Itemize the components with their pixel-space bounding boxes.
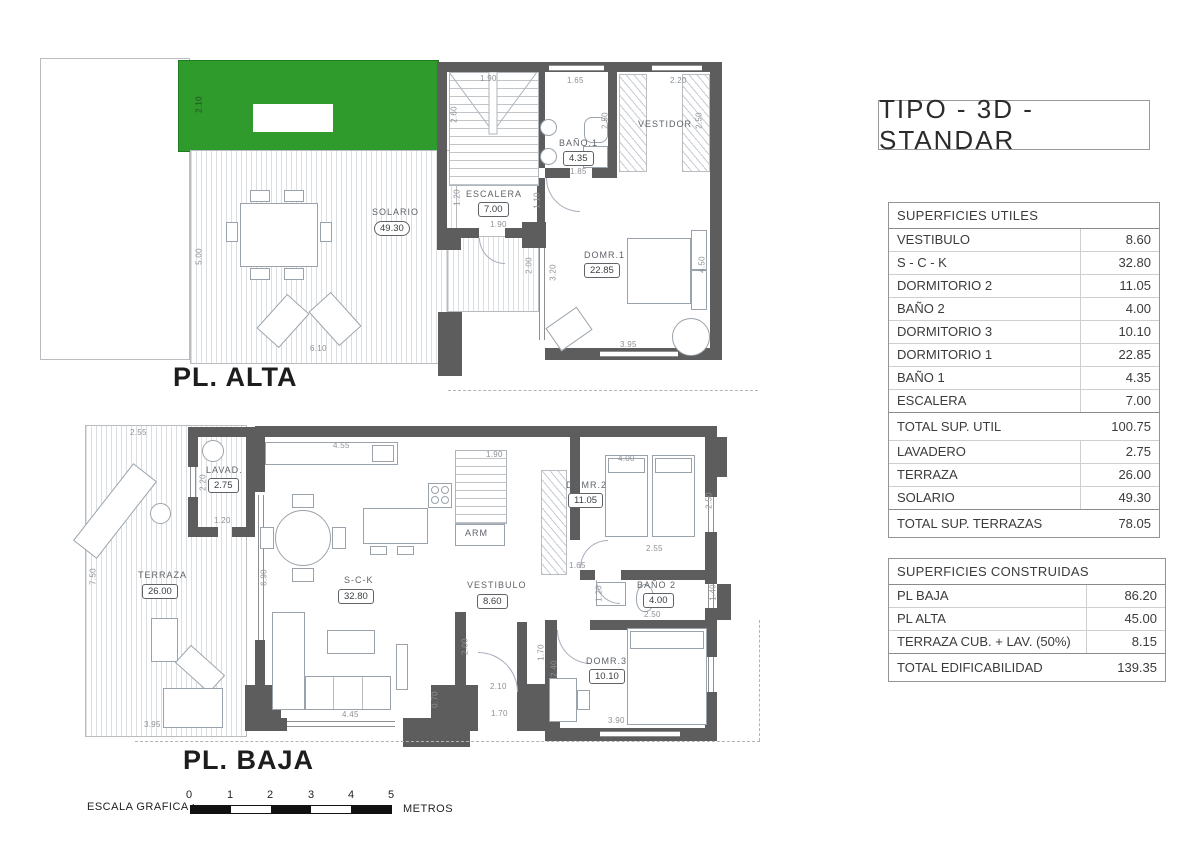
- table-row: BAÑO 24.00: [889, 297, 1159, 320]
- dim-label: 3.90: [608, 716, 625, 725]
- dim-label: 1.65: [567, 76, 584, 85]
- dim-label: 1.20: [214, 516, 231, 525]
- room-label-dorm1: DOMR.1: [584, 250, 625, 260]
- plan-baja-title: PL. BAJA: [183, 745, 314, 776]
- scale-tick: 2: [267, 789, 273, 801]
- alta-terrace-outline: [40, 58, 190, 360]
- row-label: TERRAZA CUB. + LAV. (50%): [889, 631, 1087, 653]
- area-bano1: 4.35: [563, 151, 594, 166]
- row-label: BAÑO 2: [889, 298, 1081, 320]
- wall: [255, 426, 717, 437]
- scale-tick: 0: [186, 789, 192, 801]
- dim-label: 3.95: [144, 720, 161, 729]
- row-label: VESTIBULO: [889, 229, 1081, 251]
- table-row: TOTAL SUP. UTIL100.75: [889, 412, 1159, 440]
- table-row: DORMITORIO 122.85: [889, 343, 1159, 366]
- room-label-dorm3: DOMR.3: [586, 656, 627, 666]
- row-label: BAÑO 1: [889, 367, 1081, 389]
- row-label: DORMITORIO 2: [889, 275, 1081, 297]
- dim-label: 4.50: [698, 252, 707, 278]
- row-label: S - C - K: [889, 252, 1081, 274]
- wall: [545, 168, 570, 178]
- bed-pillow: [630, 631, 704, 649]
- chair: [284, 190, 304, 202]
- table-row: BAÑO 14.35: [889, 366, 1159, 389]
- scale-tick: 3: [308, 789, 314, 801]
- scale-ruler: [190, 805, 392, 814]
- dim-label: 0.70: [431, 687, 440, 713]
- dim-label: 3.20: [549, 260, 558, 286]
- window: [708, 657, 714, 692]
- table-row: S - C - K32.80: [889, 251, 1159, 274]
- wall: [621, 570, 707, 580]
- scale-label: ESCALA GRAFICA :: [87, 801, 195, 813]
- wall: [710, 62, 722, 358]
- chair: [250, 268, 270, 280]
- wall-pillar: [717, 584, 731, 620]
- plan-alta-title: PL. ALTA: [173, 362, 297, 393]
- dim-label: 3.95: [620, 340, 637, 349]
- solario-deck: [190, 150, 457, 364]
- burner: [431, 496, 439, 504]
- dim-label: 2.00: [525, 253, 534, 279]
- dim-label: 2.40: [550, 656, 559, 682]
- wall: [580, 570, 595, 580]
- row-label: TOTAL SUP. TERRAZAS: [889, 510, 1081, 537]
- row-label: SOLARIO: [889, 487, 1081, 509]
- superficies-construidas-table: SUPERFICIES CONSTRUIDAS PL BAJA86.20PL A…: [888, 558, 1166, 682]
- room-label-escalera: ESCALERA: [466, 189, 522, 199]
- room-label-dorm2: DOMR.2: [566, 480, 607, 490]
- row-label: TOTAL EDIFICABILIDAD: [889, 654, 1087, 681]
- tv-bench: [396, 644, 408, 690]
- area-dorm3: 10.10: [589, 669, 625, 684]
- door-arc: [546, 178, 580, 212]
- sofa-chaise: [272, 612, 305, 710]
- stool: [370, 546, 387, 555]
- chair: [292, 568, 314, 582]
- row-label: PL BAJA: [889, 585, 1087, 607]
- dim-label: 2.55: [646, 544, 663, 553]
- table-row: PL BAJA86.20: [889, 585, 1165, 607]
- plant: [672, 318, 710, 356]
- coffee-table: [327, 630, 375, 654]
- burner: [441, 486, 449, 494]
- sink-basin: [540, 119, 557, 136]
- dim-label: 2.00: [461, 634, 470, 660]
- table-header: SUPERFICIES UTILES: [889, 203, 1159, 229]
- dim-label: 1.85: [570, 167, 587, 176]
- superficies-utiles-table: SUPERFICIES UTILES VESTIBULO8.60S - C - …: [888, 202, 1160, 538]
- scale-tick: 1: [227, 789, 233, 801]
- row-value: 7.00: [1081, 390, 1159, 412]
- row-value: 11.05: [1081, 275, 1159, 297]
- wall: [505, 228, 545, 238]
- row-label: LAVADERO: [889, 441, 1081, 463]
- sheet-title: TIPO - 3D -STANDAR: [879, 94, 1149, 156]
- dim-label: 1.90: [486, 450, 503, 459]
- dim-label: 1.20: [453, 185, 462, 211]
- row-value: 22.85: [1081, 344, 1159, 366]
- dim-label: 2.20: [199, 470, 208, 496]
- bed-pillow: [655, 458, 692, 473]
- table-row: PL ALTA45.00: [889, 607, 1165, 630]
- stairs-baja: [455, 450, 507, 524]
- grass-planter: [253, 104, 333, 132]
- dim-label: 7.50: [89, 564, 98, 590]
- row-value: 32.80: [1081, 252, 1159, 274]
- dim-label: 2.55: [130, 428, 147, 437]
- window: [549, 65, 604, 71]
- table-row: TERRAZA26.00: [889, 463, 1159, 486]
- chair: [320, 222, 332, 242]
- outdoor-pad: [163, 688, 223, 728]
- sink-basin: [540, 148, 557, 165]
- chair: [292, 494, 314, 508]
- dim-label: 2.20: [670, 76, 687, 85]
- table-row: LAVADERO2.75: [889, 440, 1159, 463]
- table-row: ESCALERA7.00: [889, 389, 1159, 412]
- wall-pillar: [438, 312, 462, 376]
- chair: [260, 527, 274, 549]
- window: [652, 65, 702, 71]
- wall: [246, 427, 255, 537]
- dim-label: 4.00: [618, 454, 635, 463]
- wall: [517, 622, 527, 684]
- room-label-lavadero: LAVAD.: [206, 465, 243, 475]
- wardrobe-under-stairs: [541, 470, 567, 575]
- table-body: VESTIBULO8.60S - C - K32.80DORMITORIO 21…: [889, 229, 1159, 537]
- table-row: SOLARIO49.30: [889, 486, 1159, 509]
- wall: [437, 228, 479, 238]
- desk: [549, 678, 577, 722]
- dim-label: 2.50: [695, 108, 704, 134]
- table-row: TOTAL EDIFICABILIDAD139.35: [889, 653, 1165, 681]
- row-label: ESCALERA: [889, 390, 1081, 412]
- row-value: 8.15: [1087, 631, 1165, 653]
- dim-label: 1.70: [537, 640, 546, 666]
- table-row: DORMITORIO 211.05: [889, 274, 1159, 297]
- row-label: DORMITORIO 3: [889, 321, 1081, 343]
- dim-label: 2.50: [601, 108, 610, 134]
- row-label: TOTAL SUP. UTIL: [889, 413, 1081, 440]
- scale-unit: METROS: [403, 803, 453, 815]
- window: [600, 351, 678, 357]
- row-label: DORMITORIO 1: [889, 344, 1081, 366]
- table-row: TOTAL SUP. TERRAZAS78.05: [889, 509, 1159, 537]
- wall: [265, 718, 287, 731]
- dim-label: 6.10: [310, 344, 327, 353]
- room-label-sck: S-C-K: [344, 575, 374, 585]
- area-dorm1: 22.85: [584, 263, 620, 278]
- room-label-solario: SOLARIO: [372, 207, 419, 217]
- table-row: DORMITORIO 310.10: [889, 320, 1159, 343]
- boundary-dashed: [759, 620, 760, 741]
- side-table: [150, 503, 171, 524]
- table-row: TERRAZA CUB. + LAV. (50%)8.15: [889, 630, 1165, 653]
- area-vestibulo: 8.60: [477, 594, 508, 609]
- row-value: 26.00: [1081, 464, 1159, 486]
- desk-chair: [577, 690, 590, 710]
- area-sck: 32.80: [338, 589, 374, 604]
- outdoor-table: [151, 618, 178, 662]
- chair: [284, 268, 304, 280]
- row-value: 49.30: [1081, 487, 1159, 509]
- boundary-dashed: [448, 390, 758, 391]
- dim-label: 1.20: [595, 581, 604, 607]
- row-label: PL ALTA: [889, 608, 1087, 630]
- row-value: 45.00: [1087, 608, 1165, 630]
- dining-table: [240, 203, 318, 267]
- area-lavadero: 2.75: [208, 478, 239, 493]
- wall: [255, 437, 265, 492]
- scale-tick: 5: [388, 789, 394, 801]
- row-value: 10.10: [1081, 321, 1159, 343]
- dim-label: 2.10: [195, 92, 204, 118]
- sofa-divider: [333, 677, 334, 709]
- wall: [188, 527, 218, 537]
- washing-machine: [202, 440, 224, 462]
- wall-pillar: [705, 437, 727, 477]
- room-label-bano2: BAÑO 2: [637, 580, 676, 590]
- room-label-arm: ARM: [465, 528, 488, 538]
- round-table: [275, 510, 331, 566]
- area-dorm2: 11.05: [568, 493, 603, 508]
- dim-label: 2.50: [644, 610, 661, 619]
- area-terraza: 26.00: [142, 584, 178, 599]
- boundary-dashed: [135, 741, 760, 742]
- dim-label: 1.70: [491, 709, 508, 718]
- chair: [226, 222, 238, 242]
- dim-label: 1.90: [490, 220, 507, 229]
- dim-label: 1.90: [480, 74, 497, 83]
- chair: [250, 190, 270, 202]
- armchair: [545, 307, 592, 352]
- stairs-cross-lines: [449, 72, 537, 184]
- row-value: 139.35: [1087, 654, 1165, 681]
- dim-label: 1.65: [569, 561, 586, 570]
- area-bano2: 4.00: [643, 593, 674, 608]
- room-label-vestibulo: VESTIBULO: [467, 580, 527, 590]
- dim-label: 4.55: [333, 441, 350, 450]
- window: [190, 467, 196, 497]
- floorplan-sheet: SOLARIO 49.30 ESCALERA 7.00 BAÑO.1 4.35 …: [0, 0, 1200, 848]
- bed-dorm1: [627, 238, 691, 304]
- row-value: 4.35: [1081, 367, 1159, 389]
- stool: [397, 546, 414, 555]
- sheet-title-box: TIPO - 3D -STANDAR: [878, 100, 1150, 150]
- wall: [437, 62, 447, 236]
- kitchen-island: [363, 508, 428, 544]
- scale-tick: 4: [348, 789, 354, 801]
- row-value: 8.60: [1081, 229, 1159, 251]
- chair: [332, 527, 346, 549]
- row-value: 86.20: [1087, 585, 1165, 607]
- area-escalera: 7.00: [478, 202, 509, 217]
- dim-label: 4.45: [342, 710, 359, 719]
- window: [600, 731, 680, 737]
- table-body: PL BAJA86.20PL ALTA45.00TERRAZA CUB. + L…: [889, 585, 1165, 681]
- wall-pillar: [437, 236, 461, 250]
- kitchen-sink: [372, 445, 394, 462]
- dim-label: 5.00: [195, 244, 204, 270]
- row-value: 4.00: [1081, 298, 1159, 320]
- sofa-seats: [305, 676, 391, 710]
- room-label-bano1: BAÑO.1: [559, 138, 598, 148]
- room-label-vestidor: VESTIDOR: [638, 119, 692, 129]
- row-label: TERRAZA: [889, 464, 1081, 486]
- burner: [431, 486, 439, 494]
- dim-label: 2.60: [450, 102, 459, 128]
- dim-label: 1.10: [533, 188, 542, 214]
- row-value: 100.75: [1081, 413, 1159, 440]
- row-value: 2.75: [1081, 441, 1159, 463]
- sofa-divider: [362, 677, 363, 709]
- window: [287, 721, 395, 727]
- table-row: VESTIBULO8.60: [889, 229, 1159, 251]
- area-solario: 49.30: [374, 221, 410, 236]
- dim-label: 2.50: [705, 488, 714, 514]
- room-label-terraza: TERRAZA: [138, 570, 187, 580]
- wall: [188, 427, 198, 467]
- window: [539, 248, 545, 340]
- dim-label: 2.10: [490, 682, 507, 691]
- table-header: SUPERFICIES CONSTRUIDAS: [889, 559, 1165, 585]
- burner: [441, 496, 449, 504]
- dim-label: 6.90: [260, 565, 269, 591]
- dim-label: 1.40: [709, 580, 718, 606]
- row-value: 78.05: [1081, 510, 1159, 537]
